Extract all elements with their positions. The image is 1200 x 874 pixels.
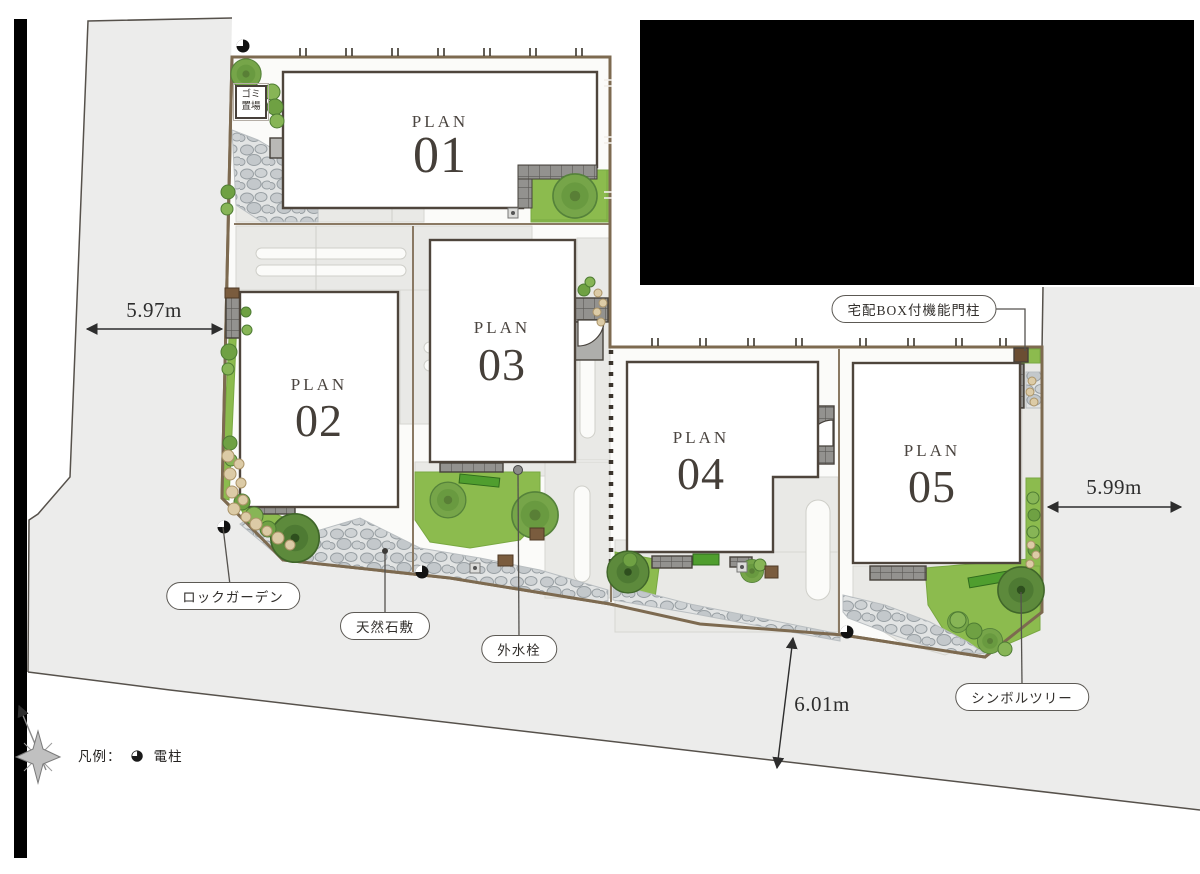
building-plan-02: PLAN 02 [240, 292, 398, 507]
building-plan-05: PLAN 05 [853, 363, 1020, 563]
plan-02-word: PLAN [291, 375, 347, 394]
redaction-overlay [640, 20, 1194, 285]
dimension-south-value: 6.01m [794, 692, 850, 716]
label-rock-garden: ロックガーデン [166, 582, 300, 610]
label-outdoor-faucet: 外水栓 [481, 635, 557, 663]
outdoor-faucet-fixture [514, 466, 523, 475]
garbage-sign-line1: ゴミ [241, 90, 260, 102]
plan-05-word: PLAN [904, 441, 960, 460]
legend-pole-label: 電柱 [154, 745, 183, 765]
utility-pole-icon: ◕ [131, 748, 145, 763]
road-east-edge [1042, 287, 1043, 350]
label-symbol-tree: シンボルツリー [955, 683, 1089, 711]
plan-03-word: PLAN [474, 318, 530, 337]
plan-05-number: 05 [908, 461, 956, 512]
left-edge-bar [14, 19, 27, 858]
legend-prefix: 凡例： [78, 745, 122, 765]
label-delivery-box-pillar: 宅配BOX付機能門柱 [831, 295, 996, 323]
plan-04-number: 04 [677, 448, 725, 499]
plan-04-word: PLAN [673, 428, 729, 447]
legend: 凡例： ◕ 電柱 [78, 745, 183, 765]
garbage-sign-line2: 置場 [241, 102, 260, 114]
plan-01-garage-tile-v [518, 179, 532, 208]
dimension-west-value: 5.97m [126, 298, 182, 322]
dimension-east-value: 5.99m [1086, 475, 1142, 499]
site-plan-page: PLAN 01 PLAN 02 PLAN 03 PLAN 04 PLAN 05 [0, 0, 1200, 874]
stone-anchor-dot [382, 548, 388, 554]
plan-01-number: 01 [413, 127, 467, 184]
building-plan-03: PLAN 03 [430, 240, 575, 462]
garbage-place-sign: ゴミ 置場 [235, 85, 267, 119]
label-natural-stone: 天然石敷 [340, 612, 430, 640]
plan-03-number: 03 [478, 339, 526, 390]
site-plan-drawing: PLAN 01 PLAN 02 PLAN 03 PLAN 04 PLAN 05 [0, 0, 1200, 874]
plan-02-number: 02 [295, 395, 343, 446]
